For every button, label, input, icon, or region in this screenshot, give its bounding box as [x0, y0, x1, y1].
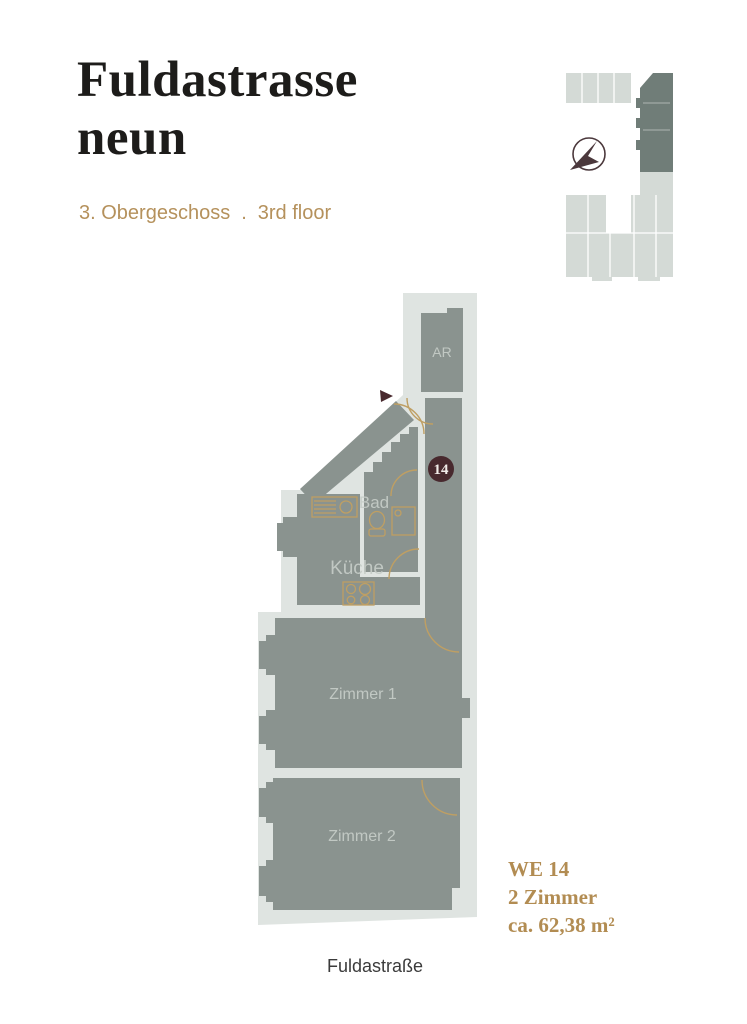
room-label-ar: AR: [432, 344, 451, 360]
floor-subtitle: 3. Obergeschoss . 3rd floor: [79, 202, 331, 225]
unit-number: WE 14: [508, 855, 615, 883]
unit-room-count: 2 Zimmer: [508, 883, 615, 911]
room-corridor: [425, 398, 462, 618]
building-overview-minimap: [560, 60, 685, 285]
brochure-page: Fuldastrasse neun 3. Obergeschoss . 3rd …: [0, 0, 747, 1024]
compass-icon: [570, 138, 605, 170]
floor-label-en: 3rd floor: [258, 202, 331, 225]
unit-badge-number: 14: [434, 462, 450, 478]
unit-badge: 14: [428, 456, 454, 482]
entrance-marker-icon: [380, 390, 393, 402]
street-label: Fuldastraße: [275, 956, 475, 977]
floor-label-de: 3. Obergeschoss: [79, 202, 230, 225]
room-label-zimmer2: Zimmer 2: [328, 828, 396, 845]
floorplan: AR Bad Küche Zimmer 1 Zimmer 2 14: [250, 288, 495, 938]
page-title: Fuldastrasse neun: [77, 51, 358, 167]
page-title-line2: neun: [77, 109, 358, 167]
minimap-highlighted-unit: [636, 73, 673, 172]
page-title-line1: Fuldastrasse: [77, 51, 358, 109]
unit-area: ca. 62,38 m²: [508, 911, 615, 939]
room-label-bad: Bad: [359, 493, 389, 512]
room-label-zimmer1: Zimmer 1: [329, 686, 397, 703]
unit-info: WE 14 2 Zimmer ca. 62,38 m²: [508, 855, 615, 939]
subtitle-separator: .: [241, 202, 247, 225]
room-label-kueche: Küche: [330, 558, 384, 579]
